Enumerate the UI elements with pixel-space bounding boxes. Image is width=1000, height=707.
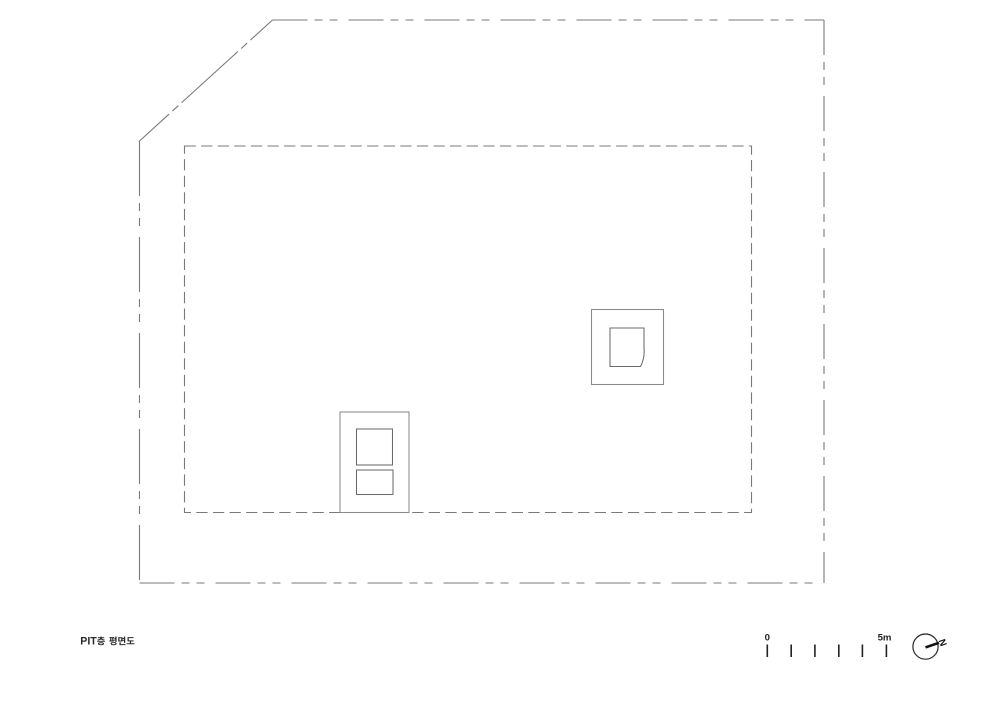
svg-text:0: 0 xyxy=(765,632,770,643)
svg-text:5m: 5m xyxy=(878,632,892,643)
svg-text:PIT: PIT xyxy=(80,636,97,648)
